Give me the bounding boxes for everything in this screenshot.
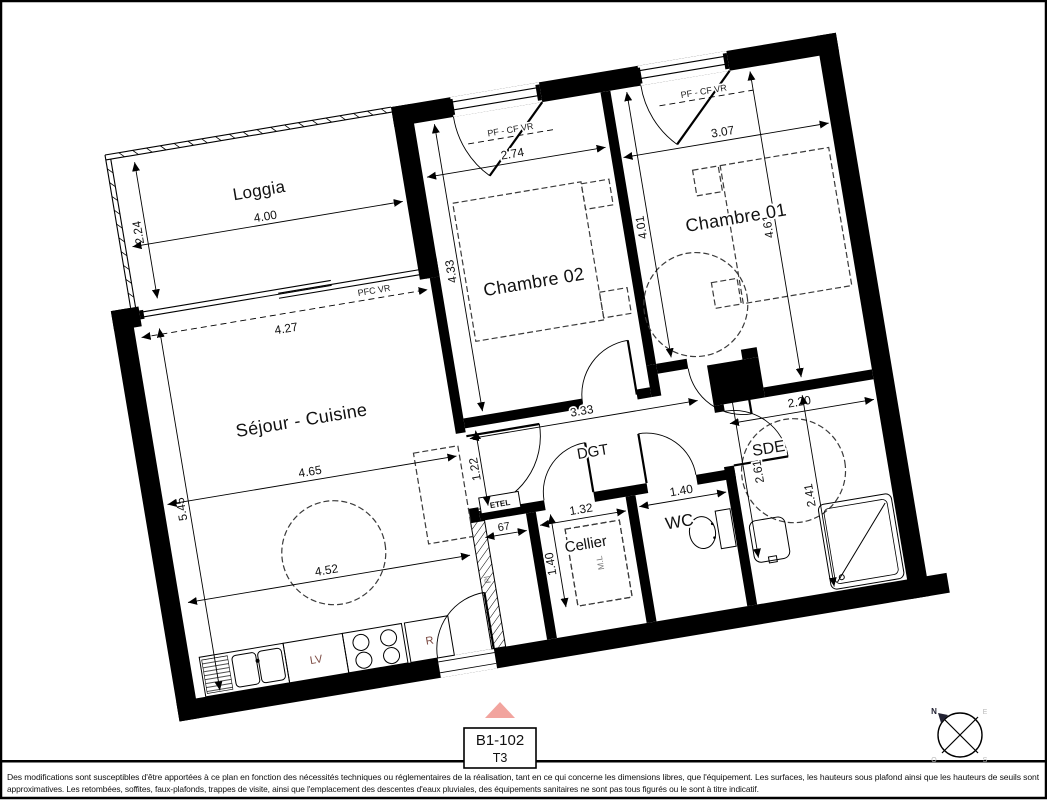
plan-group: Pl (85, 29, 950, 721)
fridge-label: R (425, 634, 435, 647)
washbasin (748, 516, 790, 563)
sink-bowl-left (231, 652, 260, 688)
floor-plan-page: Pl (0, 0, 1047, 800)
unit-type: T3 (493, 751, 508, 765)
dim-bay-width: 4.27 (273, 320, 299, 338)
footer-disclaimer: Des modifications sont susceptibles d'êt… (7, 772, 1040, 794)
room-label-chambre02: Chambre 02 (482, 264, 586, 301)
dim-cellier-width: 1.32 (568, 500, 594, 518)
dim-dgt-length: 3.33 (569, 402, 595, 420)
unit-number: B1-102 (476, 732, 524, 749)
dim-ch02-width: 2.74 (500, 145, 526, 163)
ch02-window-code: PF - CF VR (487, 121, 535, 139)
dim-sde-corridor: 2.61 (749, 459, 767, 485)
dimensions: 2.24 4.00 PFC VR 4.27 2.74 PF - CF VR 4.… (111, 48, 904, 694)
sink-bowl-right (257, 648, 286, 684)
disclaimer-line1: Des modifications sont susceptibles d'êt… (7, 772, 1040, 782)
room-label-wc: WC (664, 510, 695, 533)
compass-icon: N E S O (931, 707, 988, 764)
entry-closet: Pl (471, 520, 506, 649)
unit-label-box: B1-102 T3 (464, 728, 536, 768)
dishwasher-label: LV (309, 653, 324, 667)
dim-ch01-width: 3.07 (710, 123, 736, 141)
dim-dgt-width: 1.22 (466, 456, 484, 482)
shower-drain (839, 574, 845, 580)
room-label-cellier: Cellier (564, 533, 609, 557)
ch01-window-code: PF - CF VR (680, 82, 728, 100)
compass-n: N (931, 707, 937, 716)
compass-o: O (931, 757, 937, 764)
floor-plan-drawing: Pl (0, 0, 1047, 800)
washing-machine-label: M.L (594, 555, 606, 571)
dim-sde-length: 2.41 (801, 482, 819, 508)
entrance-marker-icon (485, 702, 515, 718)
disclaimer-line2: approximatives. Les retombées, soffites,… (7, 784, 759, 794)
dim-sejour-width-lower: 4.52 (314, 561, 340, 579)
room-label-dgt: DGT (576, 441, 610, 463)
dim-sejour-width: 4.65 (297, 463, 323, 481)
room-label-sejour: Séjour - Cuisine (234, 399, 368, 441)
compass-e: E (983, 709, 988, 716)
compass-s: S (983, 757, 988, 764)
dim-entry-niche: 67 (497, 520, 511, 534)
room-label-loggia: Loggia (231, 177, 287, 205)
bay-window-code: PFC VR (357, 283, 392, 298)
dim-sde-width: 2.20 (787, 393, 813, 411)
dim-wc-width: 1.40 (669, 482, 695, 500)
